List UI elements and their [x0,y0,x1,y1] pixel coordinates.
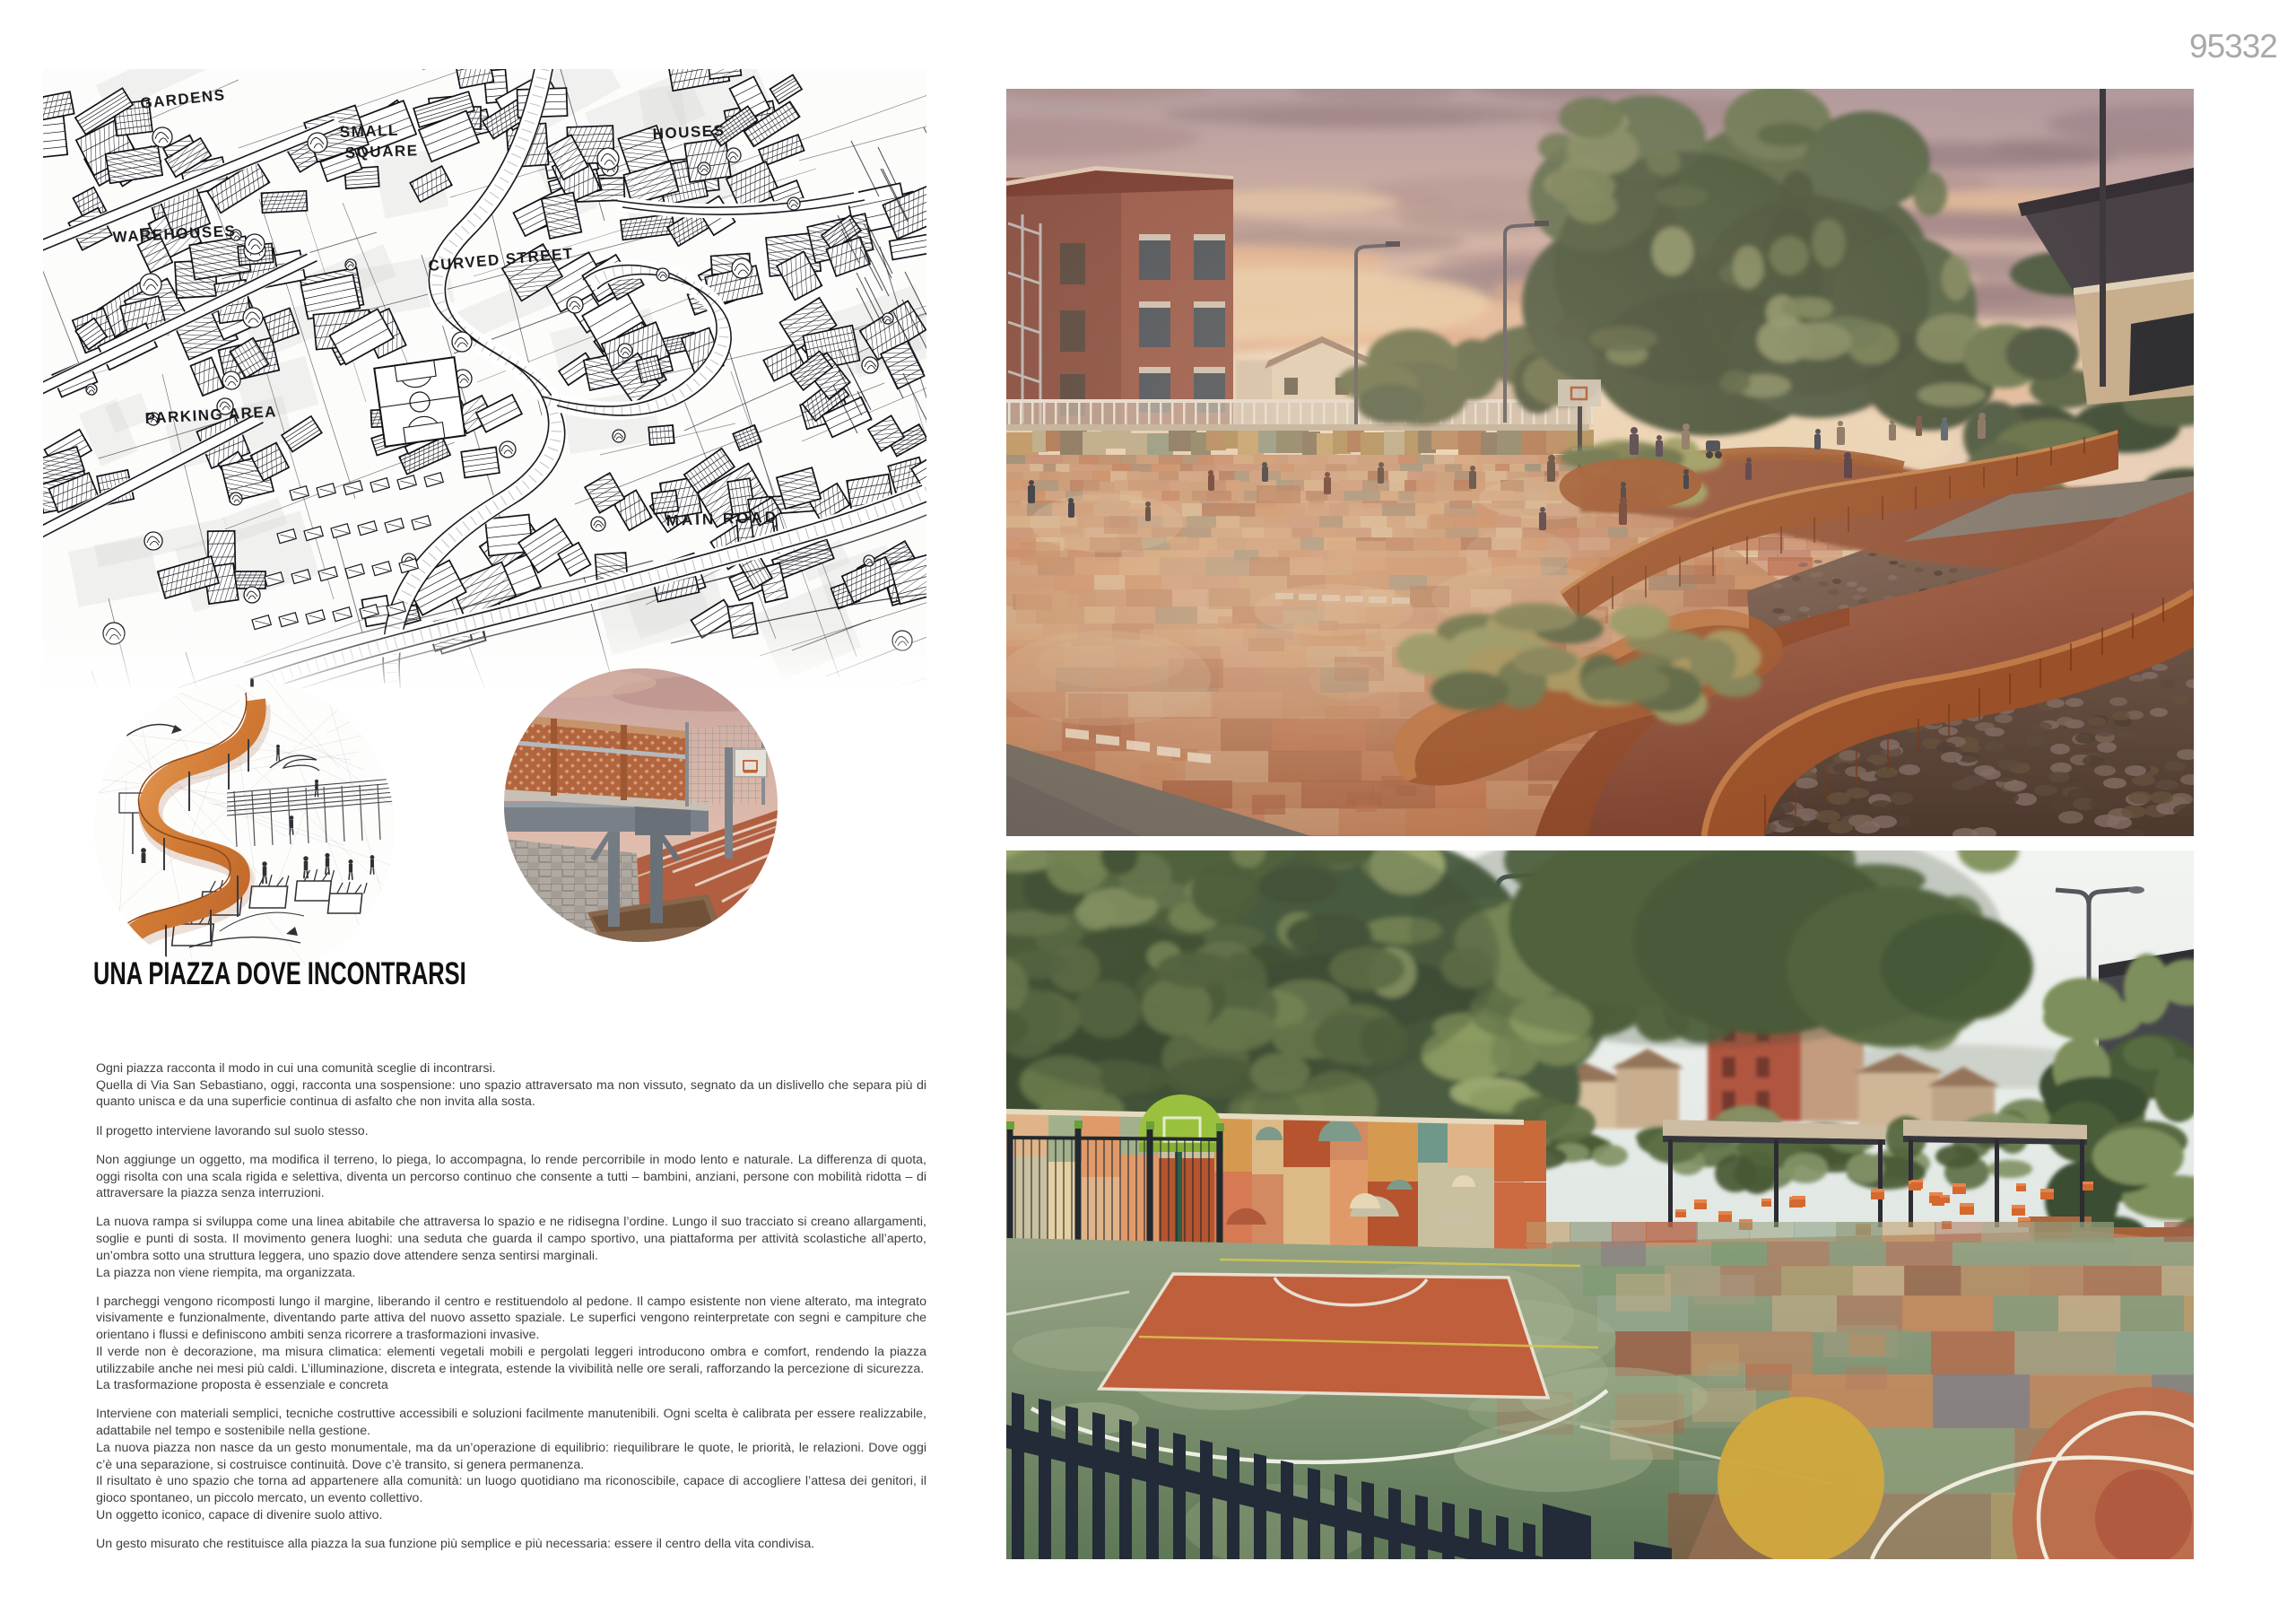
svg-text:SMALL: SMALL [339,122,399,141]
svg-text:SQUARE: SQUARE [344,142,418,161]
